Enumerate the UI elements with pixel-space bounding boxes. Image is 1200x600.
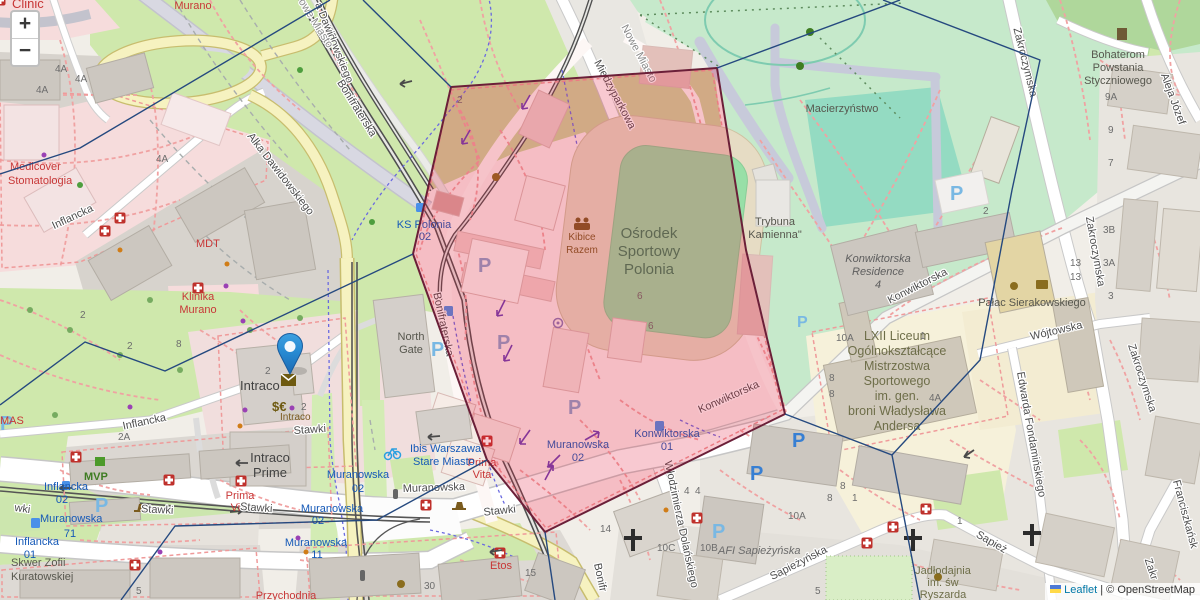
svg-text:Stawki: Stawki — [483, 503, 516, 518]
svg-text:8: 8 — [829, 389, 835, 400]
svg-text:Murano: Murano — [179, 304, 216, 316]
svg-text:2: 2 — [983, 206, 989, 217]
svg-text:4A: 4A — [929, 393, 942, 404]
svg-text:11: 11 — [311, 549, 322, 561]
svg-text:Residence: Residence — [852, 266, 904, 278]
svg-text:13: 13 — [1070, 258, 1082, 269]
svg-text:Macierzyństwo: Macierzyństwo — [806, 103, 879, 115]
svg-text:Prime: Prime — [253, 465, 287, 480]
svg-text:broni Władysława: broni Władysława — [848, 404, 946, 418]
svg-text:Intraco: Intraco — [240, 378, 280, 393]
svg-text:Stomatologia: Stomatologia — [8, 175, 73, 187]
svg-text:Ibis Warszawa: Ibis Warszawa — [410, 443, 482, 455]
svg-text:Kamienna": Kamienna" — [748, 229, 802, 241]
svg-text:North: North — [398, 331, 425, 343]
svg-text:5: 5 — [136, 586, 142, 597]
svg-text:10C: 10C — [657, 543, 675, 554]
svg-text:Kuratowskiej: Kuratowskiej — [11, 571, 73, 583]
svg-text:Stawki: Stawki — [240, 501, 273, 515]
svg-text:Muranowska: Muranowska — [327, 469, 390, 481]
svg-text:Jadłodajnia: Jadłodajnia — [915, 565, 972, 577]
svg-text:Muranowska: Muranowska — [301, 503, 364, 515]
svg-text:8: 8 — [176, 339, 182, 350]
svg-text:wki: wki — [13, 502, 31, 516]
svg-text:2: 2 — [265, 366, 271, 377]
svg-text:Pałac Sierakowskiego: Pałac Sierakowskiego — [978, 297, 1086, 309]
svg-text:Gate: Gate — [399, 344, 423, 356]
svg-text:2: 2 — [80, 310, 86, 321]
svg-text:Ryszarda: Ryszarda — [920, 589, 967, 600]
svg-text:10A: 10A — [788, 511, 806, 522]
svg-text:02: 02 — [56, 494, 68, 506]
svg-text:Etos: Etos — [490, 560, 513, 572]
svg-text:MAS: MAS — [0, 415, 24, 427]
svg-text:10A: 10A — [836, 333, 854, 344]
svg-text:8: 8 — [829, 373, 835, 384]
svg-text:8: 8 — [827, 493, 833, 504]
svg-text:Stare Miasto: Stare Miasto — [413, 456, 475, 468]
svg-text:9A: 9A — [1105, 92, 1118, 103]
svg-text:1: 1 — [920, 331, 926, 342]
svg-text:P: P — [750, 463, 763, 485]
svg-text:im. św: im. św — [927, 577, 958, 589]
svg-text:8: 8 — [840, 481, 846, 492]
svg-text:4A: 4A — [75, 74, 88, 85]
svg-text:3: 3 — [1108, 291, 1114, 302]
svg-text:Stawki: Stawki — [141, 503, 174, 517]
svg-text:2: 2 — [301, 402, 307, 413]
svg-text:Inflancka: Inflancka — [44, 481, 89, 493]
svg-text:Intraco: Intraco — [280, 412, 311, 423]
svg-text:10B: 10B — [700, 543, 718, 554]
svg-text:P: P — [792, 430, 805, 452]
svg-text:Murano: Murano — [174, 0, 211, 12]
svg-text:30: 30 — [424, 581, 436, 592]
svg-text:Styczniowego: Styczniowego — [1084, 75, 1152, 87]
svg-text:Stawki: Stawki — [293, 423, 326, 437]
svg-text:7: 7 — [1108, 158, 1114, 169]
svg-text:Mistrzostwa: Mistrzostwa — [864, 359, 930, 373]
svg-text:5: 5 — [815, 586, 821, 597]
svg-text:2A: 2A — [118, 432, 131, 443]
svg-text:Muranowska: Muranowska — [285, 537, 348, 549]
svg-text:4: 4 — [695, 486, 701, 497]
svg-text:P: P — [797, 314, 808, 331]
svg-text:2: 2 — [127, 341, 133, 352]
svg-text:P: P — [712, 521, 725, 543]
svg-text:Trybuna: Trybuna — [755, 216, 796, 228]
svg-text:Bohaterom: Bohaterom — [1091, 49, 1145, 61]
svg-text:13: 13 — [1070, 272, 1082, 283]
svg-text:im. gen.: im. gen. — [875, 389, 919, 403]
svg-text:1: 1 — [957, 516, 963, 527]
svg-text:Andersa: Andersa — [874, 419, 921, 433]
svg-text:Powstania: Powstania — [1093, 62, 1145, 74]
svg-text:3A: 3A — [1103, 258, 1116, 269]
svg-text:Klinika: Klinika — [182, 291, 215, 303]
svg-text:Intraco: Intraco — [250, 450, 290, 465]
svg-text:Muranowska: Muranowska — [40, 513, 103, 525]
svg-text:Konwiktorska: Konwiktorska — [845, 253, 910, 265]
svg-text:Ogólnokształcące: Ogólnokształcące — [848, 344, 947, 358]
svg-text:Sportowego: Sportowego — [864, 374, 931, 388]
svg-text:71: 71 — [64, 528, 76, 540]
svg-text:02: 02 — [352, 483, 364, 495]
svg-text:01: 01 — [24, 549, 36, 561]
svg-text:Vita: Vita — [473, 469, 493, 481]
svg-text:P: P — [950, 183, 963, 205]
svg-text:AFI Sapieżyńska: AFI Sapieżyńska — [717, 545, 801, 557]
svg-text:4: 4 — [875, 279, 881, 291]
svg-text:4A: 4A — [55, 64, 68, 75]
svg-text:9: 9 — [1108, 125, 1114, 136]
svg-text:15: 15 — [525, 568, 537, 579]
svg-text:4: 4 — [684, 486, 690, 497]
svg-text:Przychodnia: Przychodnia — [256, 590, 317, 600]
svg-text:Inflancka: Inflancka — [15, 536, 60, 548]
svg-text:Skwer Zofii: Skwer Zofii — [11, 557, 65, 569]
svg-text:MDT: MDT — [196, 238, 220, 250]
svg-text:4A: 4A — [156, 154, 169, 165]
svg-text:3B: 3B — [1103, 225, 1116, 236]
svg-text:1: 1 — [852, 493, 858, 504]
svg-text:4A: 4A — [36, 85, 49, 96]
svg-text:14: 14 — [600, 524, 612, 535]
